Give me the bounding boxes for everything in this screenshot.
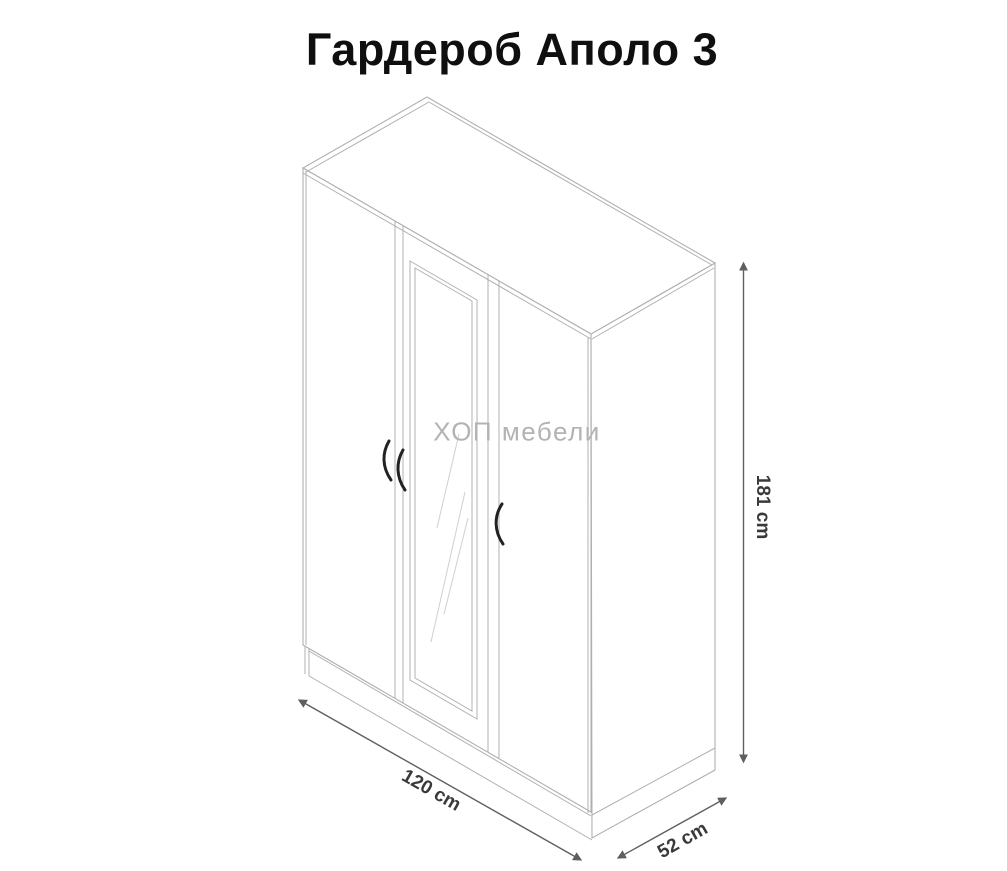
wardrobe-body	[303, 97, 715, 838]
wardrobe-side-face	[591, 263, 715, 838]
height-dimension-label: 181 cm	[751, 475, 773, 539]
product-dimension-page: Гардероб Аполо 3	[0, 0, 1007, 871]
watermark: ХОП мебели	[433, 417, 601, 448]
